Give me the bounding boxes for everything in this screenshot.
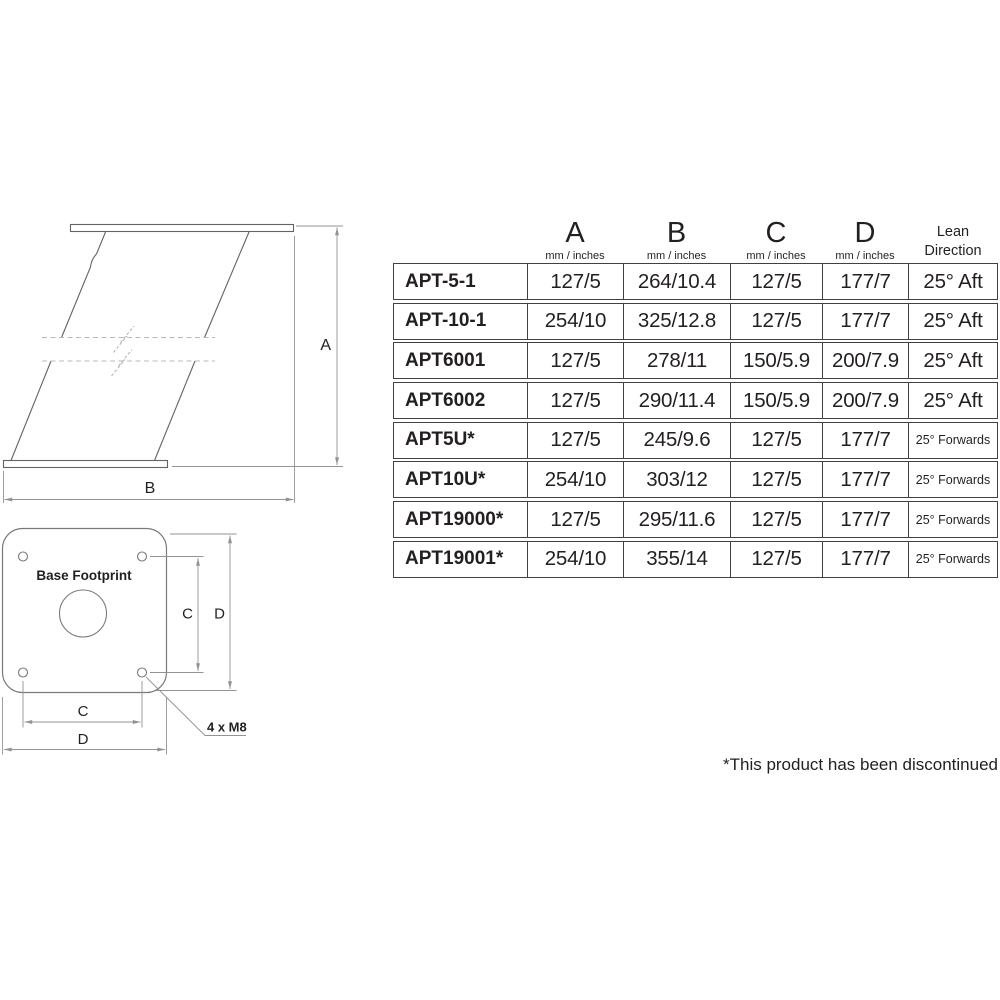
body-lower-left-line (11, 361, 51, 461)
dim-b-label: B (145, 480, 156, 497)
model-cell: APT6002 (394, 383, 528, 418)
cell-lean: 25° Forwards (909, 542, 997, 577)
dim-c-bottom-label: C (78, 703, 89, 720)
cell-lean: 25° Aft (909, 343, 997, 378)
header-lean-line2: Direction (924, 243, 981, 262)
base-footprint-title: Base Footprint (36, 568, 132, 583)
header-lean-line1: Lean (937, 224, 969, 243)
break-lines (42, 338, 215, 362)
dim-c-right-label: C (182, 606, 193, 623)
dim-d-right-label: D (214, 606, 225, 623)
table-row: APT-5-1 127/5 264/10.4 127/5 177/7 25° A… (393, 263, 998, 300)
model-cell: APT19000* (394, 502, 528, 537)
cell-a: 127/5 (528, 264, 624, 299)
table-row: APT5U* 127/5 245/9.6 127/5 177/7 25° For… (393, 422, 998, 459)
table-row: APT6001 127/5 278/11 150/5.9 200/7.9 25°… (393, 342, 998, 379)
base-footprint-view (3, 529, 167, 693)
cell-d: 200/7.9 (823, 343, 909, 378)
cell-d: 177/7 (823, 264, 909, 299)
header-col-lean: Lean Direction (908, 224, 998, 262)
table-row: APT6002 127/5 290/11.4 150/5.9 200/7.9 2… (393, 382, 998, 419)
header-b-label: B (667, 219, 686, 248)
table-row: APT19000* 127/5 295/11.6 127/5 177/7 25°… (393, 501, 998, 538)
technical-drawing: A B Base Footprint C (0, 0, 360, 780)
table-row: APT19001* 254/10 355/14 127/5 177/7 25° … (393, 541, 998, 578)
cell-a: 254/10 (528, 462, 624, 497)
model-cell: APT-10-1 (394, 304, 528, 339)
cell-b: 290/11.4 (624, 383, 731, 418)
cell-a: 127/5 (528, 343, 624, 378)
cell-b: 303/12 (624, 462, 731, 497)
table-row: APT-10-1 254/10 325/12.8 127/5 177/7 25°… (393, 303, 998, 340)
discontinued-footnote: *This product has been discontinued (598, 755, 998, 775)
cell-c: 127/5 (731, 304, 823, 339)
header-a-label: A (565, 219, 584, 248)
cell-d: 177/7 (823, 423, 909, 458)
table-body: APT-5-1 127/5 264/10.4 127/5 177/7 25° A… (393, 263, 998, 578)
cell-a: 127/5 (528, 423, 624, 458)
break-symbols (112, 326, 135, 376)
cell-b: 278/11 (624, 343, 731, 378)
top-flange (71, 225, 294, 232)
cell-c: 127/5 (731, 462, 823, 497)
table-row: APT10U* 254/10 303/12 127/5 177/7 25° Fo… (393, 461, 998, 498)
cell-a: 254/10 (528, 304, 624, 339)
header-c-units: mm / inches (746, 251, 805, 262)
header-b-units: mm / inches (647, 251, 706, 262)
header-c-label: C (766, 219, 787, 248)
cell-lean: 25° Forwards (909, 423, 997, 458)
header-col-c: C mm / inches (730, 219, 822, 262)
pedestal-side-view (4, 225, 294, 468)
model-cell: APT6001 (394, 343, 528, 378)
cell-d: 177/7 (823, 542, 909, 577)
header-col-d: D mm / inches (822, 219, 908, 262)
dim-d-bottom-label: D (78, 731, 89, 748)
spec-sheet: A B Base Footprint C (0, 0, 1000, 1000)
model-cell: APT5U* (394, 423, 528, 458)
table-header-row: A mm / inches B mm / inches C mm / inche… (393, 218, 998, 262)
header-col-b: B mm / inches (623, 219, 730, 262)
body-upper-left-line (62, 232, 106, 338)
bolt-note-label: 4 x M8 (207, 720, 247, 735)
model-cell: APT-5-1 (394, 264, 528, 299)
cell-b: 245/9.6 (624, 423, 731, 458)
cell-a: 127/5 (528, 383, 624, 418)
cell-b: 325/12.8 (624, 304, 731, 339)
cell-lean: 25° Aft (909, 264, 997, 299)
body-lower-right-line (155, 361, 196, 461)
bottom-flange (4, 461, 168, 468)
cell-c: 150/5.9 (731, 343, 823, 378)
cell-b: 295/11.6 (624, 502, 731, 537)
cell-lean: 25° Forwards (909, 502, 997, 537)
cell-lean: 25° Aft (909, 383, 997, 418)
cell-d: 200/7.9 (823, 383, 909, 418)
spec-table: A mm / inches B mm / inches C mm / inche… (393, 218, 998, 578)
cell-a: 127/5 (528, 502, 624, 537)
header-col-a: A mm / inches (527, 219, 623, 262)
cell-d: 177/7 (823, 462, 909, 497)
cell-c: 127/5 (731, 264, 823, 299)
body-upper-right-line (205, 232, 250, 338)
cell-lean: 25° Aft (909, 304, 997, 339)
cell-c: 127/5 (731, 502, 823, 537)
model-cell: APT10U* (394, 462, 528, 497)
dim-a-label: A (320, 337, 331, 354)
cell-c: 127/5 (731, 542, 823, 577)
cell-c: 150/5.9 (731, 383, 823, 418)
cell-b: 264/10.4 (624, 264, 731, 299)
cell-b: 355/14 (624, 542, 731, 577)
model-cell: APT19001* (394, 542, 528, 577)
header-d-units: mm / inches (835, 251, 894, 262)
cell-d: 177/7 (823, 502, 909, 537)
header-a-units: mm / inches (545, 251, 604, 262)
cell-a: 254/10 (528, 542, 624, 577)
cell-c: 127/5 (731, 423, 823, 458)
cell-lean: 25° Forwards (909, 462, 997, 497)
header-d-label: D (855, 219, 876, 248)
dimension-a (172, 226, 343, 467)
cell-d: 177/7 (823, 304, 909, 339)
